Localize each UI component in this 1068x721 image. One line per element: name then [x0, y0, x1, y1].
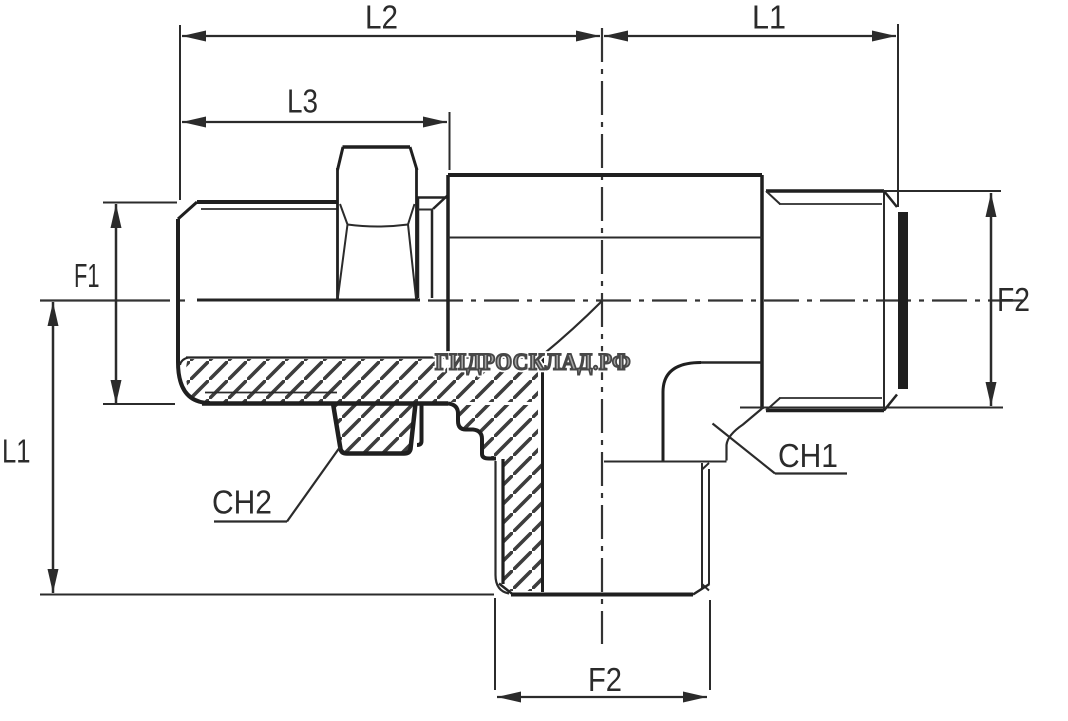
svg-text:ГИДРОСКЛАД.РФ: ГИДРОСКЛАД.РФ [435, 350, 631, 376]
svg-text:L2: L2 [365, 0, 398, 37]
svg-text:CH1: CH1 [778, 438, 838, 475]
svg-text:L1: L1 [752, 0, 786, 37]
svg-text:F1: F1 [74, 258, 100, 295]
svg-text:F2: F2 [997, 282, 1030, 319]
svg-text:L3: L3 [287, 84, 318, 121]
svg-text:L1: L1 [2, 434, 31, 471]
svg-text:CH2: CH2 [212, 485, 272, 522]
svg-text:F2: F2 [588, 662, 622, 699]
